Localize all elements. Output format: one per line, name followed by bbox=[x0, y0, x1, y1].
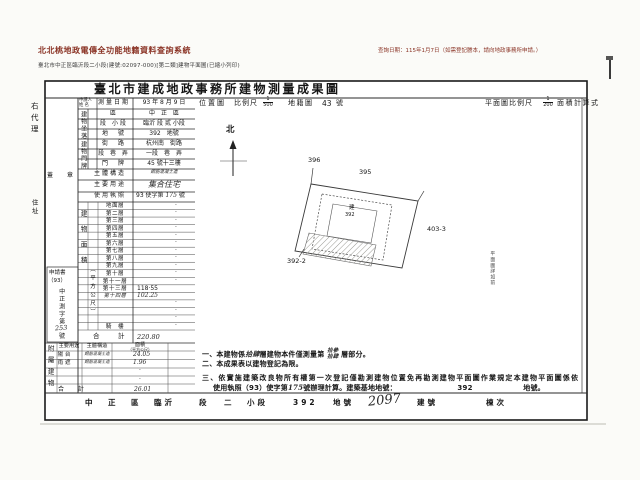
floor-row-dot: · bbox=[175, 323, 177, 330]
cadastral-sheet-number: 43 bbox=[322, 100, 332, 108]
building-inner-label: 建 bbox=[349, 205, 355, 211]
location-map-label: 位置圖 bbox=[199, 100, 226, 108]
floor-row-label: 第十層 bbox=[106, 271, 124, 277]
info-row-label: 區 bbox=[110, 111, 118, 118]
seal-label: 蓋 章 bbox=[47, 173, 77, 180]
floor-row-dot: · bbox=[175, 210, 177, 217]
area-calc-label: 面積計算式 bbox=[557, 100, 600, 108]
north-label: 北 bbox=[226, 126, 235, 135]
floor-row-label: 第二層 bbox=[106, 211, 124, 217]
footer-part: 中 bbox=[85, 399, 93, 407]
floor-row-dot: · bbox=[175, 255, 177, 262]
note-3-line1: 三、依實施建築改良物所有權第一次登記僅勘測建物位置免再勘測建物平面圖作業規定本建… bbox=[202, 375, 579, 383]
application-year: （93） bbox=[48, 278, 66, 284]
annex-row-dot: · bbox=[139, 368, 141, 375]
annex-total-value: 26.01 bbox=[134, 387, 151, 394]
margin-address-label: 住址 bbox=[30, 199, 37, 216]
floor-row-label: 第十四層 bbox=[104, 294, 127, 300]
annex-title-vertical: 附屬建物 bbox=[46, 345, 53, 391]
info-row-value: 鋼筋混凝土造 bbox=[151, 171, 178, 176]
info-row-value: 一段 巷 弄 bbox=[146, 151, 182, 158]
note-1-measured-floors-handwritten: 拾參拾肆 bbox=[327, 349, 338, 360]
annex-row-area: 1.96 bbox=[133, 360, 146, 367]
annex-row-use: 陽 台 bbox=[58, 352, 71, 358]
application-office-label: 中正測字第 bbox=[57, 288, 64, 326]
floor-area-unit-vertical: （平方公尺） bbox=[89, 266, 95, 317]
info-row-value: 45 號十三樓 bbox=[147, 161, 181, 168]
floor-row-label: 地面層 bbox=[106, 203, 124, 209]
footer-dong-label: 棟次 bbox=[486, 399, 507, 407]
note-3-license-no-handwritten: 175 bbox=[288, 383, 303, 392]
footer-part: 地號 bbox=[333, 399, 354, 407]
floor-row-dot: · bbox=[175, 278, 177, 285]
floor-total-label: 合 計 bbox=[93, 333, 131, 340]
info-row-label: 街 路 bbox=[102, 141, 126, 148]
floor-row-label: 第七層 bbox=[106, 248, 124, 254]
application-number-suffix: 號 bbox=[59, 334, 65, 341]
note-1-floors-handwritten: 拾肆 bbox=[245, 350, 259, 359]
license-no-handwritten: 175 bbox=[165, 192, 176, 199]
info-row-value: 93 使字第 175 號 bbox=[136, 193, 185, 200]
applicant-label-line2: 姓 名 bbox=[79, 104, 89, 109]
parcel-395-label: 395 bbox=[359, 169, 371, 176]
margin-agent-label: 右代理 bbox=[30, 102, 38, 137]
floor-row-label: 第六層 bbox=[106, 241, 124, 247]
floor-row-label: 第十三層 bbox=[103, 286, 127, 292]
annex-row-area: 24.05 bbox=[133, 352, 150, 359]
footer-part: 區 bbox=[131, 399, 139, 407]
floor-row-dot: · bbox=[175, 300, 177, 307]
footer-part: 二 bbox=[224, 399, 232, 407]
info-row-label: 地 號 bbox=[102, 131, 126, 138]
floor-row-value: 102.25 bbox=[137, 293, 158, 300]
annex-row-dot: · bbox=[139, 377, 141, 384]
info-row-value: 集合住宅 bbox=[148, 181, 180, 190]
group-building-doorplate: 建物門牌 bbox=[79, 141, 86, 170]
note-3-line2: 使用執照（93）使字第175號辦理計算。建築基地地號： 392 地號。 bbox=[213, 384, 545, 393]
building-inner-parcel-no: 392 bbox=[345, 213, 355, 219]
scale-label: 比例尺 bbox=[234, 100, 258, 108]
info-row-value: 中 正 區 bbox=[149, 111, 179, 118]
footer-part: 臨沂 bbox=[154, 399, 175, 407]
info-row-label: 段 小段 bbox=[100, 121, 128, 128]
group-building-location: 建物坐落 bbox=[79, 111, 86, 140]
info-row-label: 測量日期 bbox=[98, 100, 130, 107]
parcel-396-label: 396 bbox=[308, 157, 320, 164]
info-row-label: 段 巷 弄 bbox=[98, 151, 130, 158]
annex-row-use: 雨 遮 bbox=[58, 360, 71, 366]
floor-total-value: 220.80 bbox=[137, 334, 160, 341]
application-number-handwritten: 253 bbox=[55, 325, 68, 333]
map-side-note-vertical: 平面圖詳如前 bbox=[489, 251, 494, 286]
survey-sheet-graphics bbox=[0, 0, 640, 480]
note-3-base-parcel: 392 bbox=[457, 384, 472, 392]
footer-part: 段 bbox=[199, 399, 207, 407]
info-row-label: 主體構造 bbox=[94, 171, 126, 178]
footer-part: 小段 bbox=[247, 399, 268, 407]
floor-row-dot: · bbox=[175, 225, 177, 232]
plan-scale-label: 平面圖比例尺 bbox=[485, 100, 533, 108]
note-1: 一、本建物係拾肆層建物本件僅測量第 拾參拾肆 層部分。 bbox=[202, 349, 370, 360]
info-row-value: 杭州南 街路 bbox=[146, 141, 182, 148]
info-row-value: 392 地號 bbox=[149, 131, 178, 138]
floor-area-title-vertical: 建物面積 bbox=[79, 210, 86, 272]
floor-row-label: 第五層 bbox=[106, 233, 124, 239]
note-2: 二、本成果表以建物登記為限。 bbox=[202, 361, 303, 369]
floor-row-dot: · bbox=[175, 270, 177, 277]
footer-part: 正 bbox=[108, 399, 116, 407]
footer-part: 392 bbox=[293, 399, 318, 407]
floor-row-dot: · bbox=[175, 240, 177, 247]
plan-scale-fraction: 1200 bbox=[541, 97, 555, 108]
cadastral-map-label: 地籍圖 bbox=[288, 100, 314, 108]
annex-header-structure: 主體構造 bbox=[87, 344, 108, 350]
info-row-value: 93 年 8 月 9 日 bbox=[143, 100, 186, 107]
query-system-page: 北北桃地政電傳全功能地籍資料查詢系統 查詢日期：115年1月7日（如需登記謄本，… bbox=[0, 0, 640, 480]
annex-row-structure: 鋼筋混凝土造 bbox=[84, 352, 109, 357]
floor-row-label: 騎 樓 bbox=[106, 324, 124, 330]
info-row-label: 主要用途 bbox=[94, 182, 126, 189]
annex-total-label: 合 計 bbox=[58, 387, 88, 394]
parcel-392-2-label: 392-2 bbox=[287, 258, 306, 265]
info-row-label: 門 牌 bbox=[102, 161, 126, 168]
floor-row-label: 第九層 bbox=[106, 263, 124, 269]
floor-row-label: 第三層 bbox=[106, 218, 124, 224]
info-row-value: 臨沂 段 貳 小段 bbox=[143, 121, 185, 128]
cadastral-sheet-unit: 號 bbox=[336, 100, 343, 108]
info-row-label: 使用執照 bbox=[94, 193, 126, 200]
location-scale-fraction: 1500 bbox=[261, 97, 275, 108]
floor-row-label: 第十一層 bbox=[103, 279, 127, 285]
parcel-403-3-label: 403-3 bbox=[427, 226, 446, 233]
application-book-label: 申請書 bbox=[49, 270, 66, 276]
floor-row-label: 第八層 bbox=[106, 256, 124, 262]
annex-row-structure: 鋼筋混凝土造 bbox=[84, 360, 109, 365]
floor-row-label: 第四層 bbox=[106, 226, 124, 232]
footer-building-label: 建號 bbox=[417, 399, 438, 407]
annex-header-use: 主要用途 bbox=[59, 344, 80, 350]
form-title: 臺北市建成地政事務所建物測量成果圖 bbox=[94, 83, 341, 96]
